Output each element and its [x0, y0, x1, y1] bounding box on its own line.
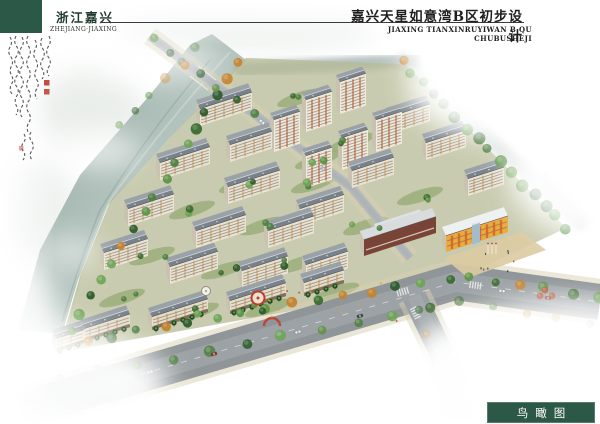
- aerial-rendering: [0, 0, 600, 424]
- calligraphy-inscription: [6, 34, 58, 162]
- project-title-en: JIAXING TIANXINRUYIWAN B QU CHUBUSHEJI: [342, 25, 532, 43]
- corner-green-block: [0, 0, 42, 33]
- region-name-cn: 浙江嘉兴: [56, 7, 114, 26]
- view-label-box: 鸟瞰图: [487, 402, 595, 423]
- presentation-sheet: { "header": { "region_cn": "浙江嘉兴", "regi…: [0, 0, 600, 424]
- region-name-en: ZHEJIANG·JIAXING: [50, 26, 117, 33]
- red-seal-stamps: [19, 80, 50, 151]
- view-label: 鸟瞰图: [510, 405, 573, 421]
